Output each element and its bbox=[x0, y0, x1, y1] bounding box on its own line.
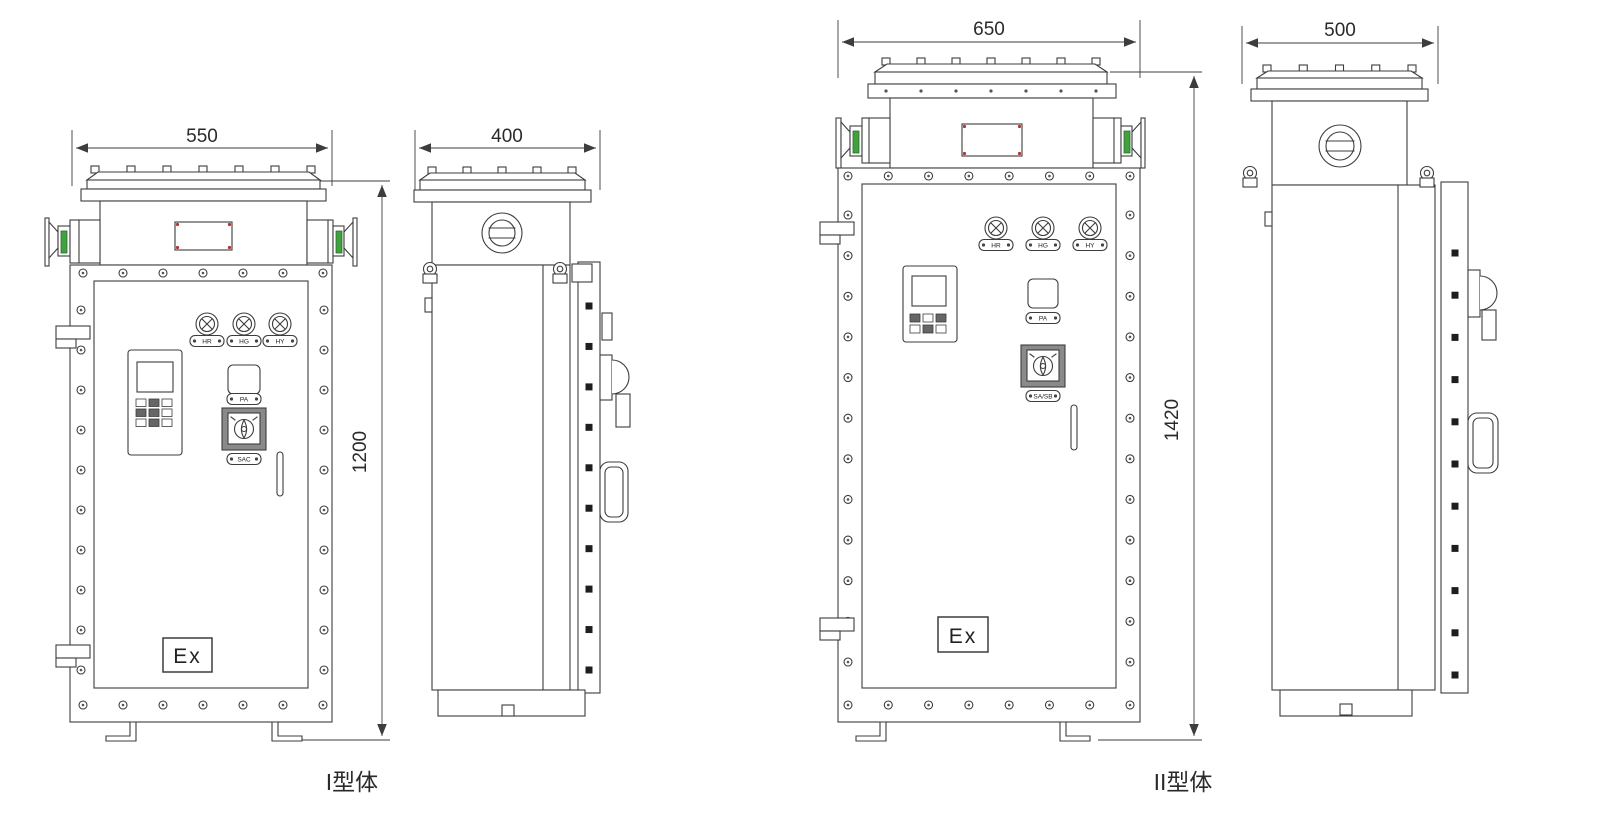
cover-bolt-icon bbox=[1024, 89, 1027, 92]
flange-bolt-icon bbox=[1126, 658, 1134, 666]
ex-label: Ex bbox=[949, 625, 978, 648]
flange-bolt-icon bbox=[884, 701, 892, 709]
flange-bolt-icon bbox=[1086, 701, 1094, 709]
cam-switch-icon bbox=[1021, 345, 1065, 387]
keypad-key bbox=[162, 409, 172, 417]
flange-bolt-icon bbox=[925, 701, 933, 709]
flange-bolt-icon bbox=[1126, 292, 1134, 300]
cover-bolt-icon bbox=[1094, 89, 1097, 92]
door-edge bbox=[1441, 182, 1468, 693]
dim-label-depth-type2: 500 bbox=[1324, 20, 1356, 41]
gland-screw-icon bbox=[853, 131, 859, 153]
door-bolt-icon bbox=[586, 667, 593, 674]
switch-label: SA/SB bbox=[1033, 394, 1052, 401]
flange-bolt-icon bbox=[77, 666, 85, 674]
flange-bolt-icon bbox=[1005, 701, 1013, 709]
flange-bolt-icon bbox=[239, 269, 247, 277]
top-cover bbox=[868, 58, 1116, 98]
junction-box bbox=[432, 202, 570, 265]
door-bolt-icon bbox=[586, 343, 593, 350]
switch-label: SAC bbox=[237, 457, 251, 464]
enclosure-body bbox=[1265, 182, 1468, 693]
keypad-key bbox=[162, 419, 172, 427]
ex-marking: Ex bbox=[163, 638, 212, 672]
flange-bolt-icon bbox=[77, 346, 85, 354]
indicator-light-icon bbox=[1079, 217, 1101, 239]
pushbutton: PA bbox=[227, 365, 261, 405]
ex-label: Ex bbox=[173, 645, 202, 668]
flange-bolt-icon bbox=[77, 426, 85, 434]
door-bolt-icon bbox=[1452, 503, 1459, 510]
flange-bolt-icon bbox=[77, 546, 85, 554]
door-pull-slot bbox=[1071, 405, 1077, 450]
cover-bolt-icon bbox=[884, 89, 887, 92]
door-bolt-icon bbox=[1452, 629, 1459, 636]
flange-bolt-icon bbox=[159, 701, 167, 709]
base-plinth bbox=[438, 690, 585, 716]
plate-screw-icon bbox=[963, 152, 966, 155]
flange-bolt-icon bbox=[844, 333, 852, 341]
flange-bolt-icon bbox=[844, 252, 852, 260]
door-bolt-icon bbox=[1452, 376, 1459, 383]
flange-bolt-icon bbox=[1126, 333, 1134, 341]
flange-bolt-icon bbox=[1126, 172, 1134, 180]
pushbutton-label: PA bbox=[1039, 316, 1048, 323]
keypad-key bbox=[910, 314, 920, 322]
light-label-hy: HY bbox=[1085, 243, 1095, 250]
light-label-hg: HG bbox=[1038, 243, 1048, 250]
lifting-eye-icon bbox=[553, 263, 567, 284]
cam-switch: SAC bbox=[222, 408, 266, 465]
indicator-lights: HR HG HY bbox=[979, 217, 1107, 251]
flange-bolt-icon bbox=[844, 292, 852, 300]
keypad-key bbox=[936, 325, 946, 333]
flange-bolt-icon bbox=[77, 466, 85, 474]
door-bolt-icon bbox=[586, 383, 593, 390]
flange-bolt-icon bbox=[844, 211, 852, 219]
flange-bolt-icon bbox=[1126, 374, 1134, 382]
type1-side-view: 400 bbox=[414, 126, 630, 716]
flange-bolt-icon bbox=[320, 666, 328, 674]
indicator-lights: HR HG HY bbox=[190, 313, 297, 347]
flange-bolt-icon bbox=[79, 269, 87, 277]
door-latch bbox=[1468, 270, 1497, 340]
flange-bolt-icon bbox=[320, 586, 328, 594]
flange-bolt-icon bbox=[320, 346, 328, 354]
lcd-screen bbox=[137, 362, 173, 392]
flange-bolt-icon bbox=[1126, 414, 1134, 422]
flange-bolt-icon bbox=[77, 306, 85, 314]
flange-bolt-icon bbox=[320, 546, 328, 554]
dim-label-width-type1: 550 bbox=[186, 126, 218, 147]
mounting-foot-icon bbox=[106, 722, 136, 741]
flange-bolt-icon bbox=[844, 701, 852, 709]
flange-bolt-icon bbox=[320, 386, 328, 394]
junction-box bbox=[890, 98, 1093, 168]
flange-bolt-icon bbox=[119, 701, 127, 709]
flange-bolt-icon bbox=[965, 172, 973, 180]
flange-bolt-icon bbox=[965, 701, 973, 709]
cover-bolt-icon bbox=[954, 89, 957, 92]
display-panel bbox=[128, 350, 182, 455]
indicator-light-icon bbox=[233, 313, 255, 335]
sight-glass-icon bbox=[482, 213, 522, 253]
flange-bolt-icon bbox=[199, 269, 207, 277]
light-label-hr: HR bbox=[202, 339, 212, 346]
flange-bolt-icon bbox=[279, 269, 287, 277]
plate-screw-icon bbox=[963, 125, 966, 128]
keypad-key bbox=[136, 419, 146, 427]
flange-bolt-icon bbox=[1126, 536, 1134, 544]
door-handle bbox=[600, 462, 628, 522]
flange-bolt-icon bbox=[1126, 495, 1134, 503]
flange-bolt-icon bbox=[844, 495, 852, 503]
flange-bolt-icon bbox=[320, 426, 328, 434]
door-bolt-icon bbox=[586, 545, 593, 552]
lifting-eye-icon bbox=[1420, 167, 1434, 188]
door-bolt-icon bbox=[586, 464, 593, 471]
flange-bolt-icon bbox=[844, 414, 852, 422]
flange-bolt-icon bbox=[77, 386, 85, 394]
flange-bolt-icon bbox=[320, 506, 328, 514]
hinge-tab bbox=[425, 298, 432, 312]
flange-bolt-icon bbox=[320, 626, 328, 634]
light-label-hy: HY bbox=[275, 339, 285, 346]
flange-bolt-icon bbox=[884, 172, 892, 180]
flange-bolt-icon bbox=[1126, 617, 1134, 625]
flange-bolt-icon bbox=[844, 455, 852, 463]
cam-switch-icon bbox=[222, 408, 266, 450]
dim-label-width-type2: 650 bbox=[973, 19, 1005, 40]
flange-bolt-icon bbox=[1086, 172, 1094, 180]
cover-bolt-icon bbox=[1059, 89, 1062, 92]
light-label-hg: HG bbox=[239, 339, 249, 346]
door-bolt-icon bbox=[586, 424, 593, 431]
plate-screw-icon bbox=[1018, 152, 1021, 155]
indicator-light-icon bbox=[196, 313, 218, 335]
plate-screw-icon bbox=[176, 223, 179, 226]
drawing-canvas: 550 1200 bbox=[0, 0, 1616, 834]
door-bolt-icon bbox=[1452, 292, 1459, 299]
flange-bolt-icon bbox=[79, 701, 87, 709]
type2-caption: II型体 bbox=[1154, 769, 1213, 795]
door-panel bbox=[862, 184, 1116, 688]
door-bolt-icon bbox=[1452, 334, 1459, 341]
flange-bolt-icon bbox=[239, 701, 247, 709]
door-handle bbox=[1468, 413, 1498, 473]
gland-screw-icon bbox=[61, 231, 67, 253]
plate-screw-icon bbox=[228, 246, 231, 249]
cabinet-drawing: 550 1200 bbox=[0, 0, 1616, 834]
flange-bolt-icon bbox=[1126, 701, 1134, 709]
top-cover bbox=[81, 166, 326, 201]
flange-bolt-icon bbox=[844, 658, 852, 666]
door-bolt-icon bbox=[1452, 418, 1459, 425]
base-plinth bbox=[1280, 690, 1412, 716]
flange-bolt-icon bbox=[159, 269, 167, 277]
flange-bolt-icon bbox=[1045, 701, 1053, 709]
flange-bolt-icon bbox=[77, 506, 85, 514]
flange-bolt-icon bbox=[844, 374, 852, 382]
top-cover bbox=[414, 167, 591, 202]
flange-bolt-icon bbox=[119, 269, 127, 277]
flange-bolt-icon bbox=[199, 701, 207, 709]
dim-label-height-type2: 1420 bbox=[1162, 399, 1183, 441]
junction-box bbox=[1272, 101, 1407, 185]
type1-caption: I型体 bbox=[326, 769, 378, 795]
cable-gland-right bbox=[1093, 118, 1145, 168]
ex-marking: Ex bbox=[938, 617, 988, 652]
door-bolt-icon bbox=[1452, 545, 1459, 552]
keypad-key bbox=[910, 325, 920, 333]
top-cover bbox=[1251, 65, 1428, 101]
cover-bolt-icon bbox=[919, 89, 922, 92]
flange-bolt-icon bbox=[1126, 455, 1134, 463]
flange-bolt-icon bbox=[320, 306, 328, 314]
type2-side-view: 500 bbox=[1242, 20, 1498, 716]
enclosure-body bbox=[425, 262, 600, 693]
flange-bolt-icon bbox=[77, 626, 85, 634]
cable-gland-right bbox=[307, 218, 357, 266]
keypad-key bbox=[162, 399, 172, 407]
cable-gland-left bbox=[45, 218, 100, 266]
door-bolt-icon bbox=[586, 303, 593, 310]
flange-bolt-icon bbox=[1005, 172, 1013, 180]
mounting-foot-icon bbox=[1060, 722, 1090, 741]
keypad-key bbox=[149, 409, 159, 417]
flange-bolt-icon bbox=[77, 586, 85, 594]
dim-label-height-type1: 1200 bbox=[350, 431, 371, 473]
gland-screw-icon bbox=[336, 231, 342, 253]
lcd-screen bbox=[912, 276, 946, 306]
plate-screw-icon bbox=[176, 246, 179, 249]
flange-bolt-icon bbox=[279, 701, 287, 709]
junction-box bbox=[100, 201, 307, 265]
flange-bolt-icon bbox=[844, 536, 852, 544]
door-bolt-icon bbox=[1452, 461, 1459, 468]
flange-bolt-icon bbox=[1126, 577, 1134, 585]
lifting-eye-icon bbox=[1243, 167, 1257, 188]
plate-screw-icon bbox=[228, 223, 231, 226]
indicator-light-icon bbox=[269, 313, 291, 335]
indicator-light-icon bbox=[1032, 217, 1054, 239]
keypad-key bbox=[923, 325, 933, 333]
flange-bolt-icon bbox=[320, 466, 328, 474]
flange-bolt-icon bbox=[1045, 172, 1053, 180]
cover-bolt-icon bbox=[989, 89, 992, 92]
door-bracket bbox=[572, 264, 592, 282]
hinge-tab bbox=[1265, 212, 1272, 226]
dim-label-depth-type1: 400 bbox=[491, 126, 523, 147]
door-bolt-icon bbox=[1452, 250, 1459, 257]
type2-front-view: 650 1420 bbox=[820, 19, 1202, 741]
flange-bolt-icon bbox=[844, 577, 852, 585]
door-latch bbox=[600, 313, 630, 427]
keypad-key bbox=[936, 314, 946, 322]
keypad-key bbox=[149, 419, 159, 427]
door-bolt-icon bbox=[586, 586, 593, 593]
door-bolt-icon bbox=[586, 505, 593, 512]
gland-screw-icon bbox=[1124, 131, 1130, 153]
sight-glass-icon bbox=[1319, 125, 1361, 167]
keypad-key bbox=[136, 409, 146, 417]
cable-gland-left bbox=[836, 118, 890, 168]
lifting-eye-icon bbox=[423, 263, 437, 284]
pushbutton-label: PA bbox=[240, 397, 249, 404]
mounting-foot-icon bbox=[856, 722, 886, 741]
flange-bolt-icon bbox=[844, 172, 852, 180]
mounting-foot-icon bbox=[272, 722, 302, 741]
cam-switch: SA/SB bbox=[1021, 345, 1065, 402]
flange-bolt-icon bbox=[319, 269, 327, 277]
keypad-key bbox=[136, 399, 146, 407]
light-label-hr: HR bbox=[991, 243, 1001, 250]
indicator-light-icon bbox=[985, 217, 1007, 239]
type1-front-view: 550 1200 bbox=[45, 126, 390, 741]
door-bolt-icon bbox=[1452, 587, 1459, 594]
flange-bolt-icon bbox=[1126, 211, 1134, 219]
junction-box-plate bbox=[962, 124, 1022, 156]
flange-bolt-icon bbox=[1126, 252, 1134, 260]
display-panel bbox=[903, 266, 957, 342]
plate-screw-icon bbox=[1018, 125, 1021, 128]
door-pull-slot bbox=[277, 452, 283, 496]
flange-bolt-icon bbox=[319, 701, 327, 709]
flange-bolt-icon bbox=[925, 172, 933, 180]
pushbutton: PA bbox=[1026, 279, 1060, 324]
door-bolt-icon bbox=[586, 626, 593, 633]
junction-box-plate bbox=[175, 222, 232, 250]
door-bolt-icon bbox=[1452, 672, 1459, 679]
keypad-key bbox=[149, 399, 159, 407]
keypad-key bbox=[923, 314, 933, 322]
